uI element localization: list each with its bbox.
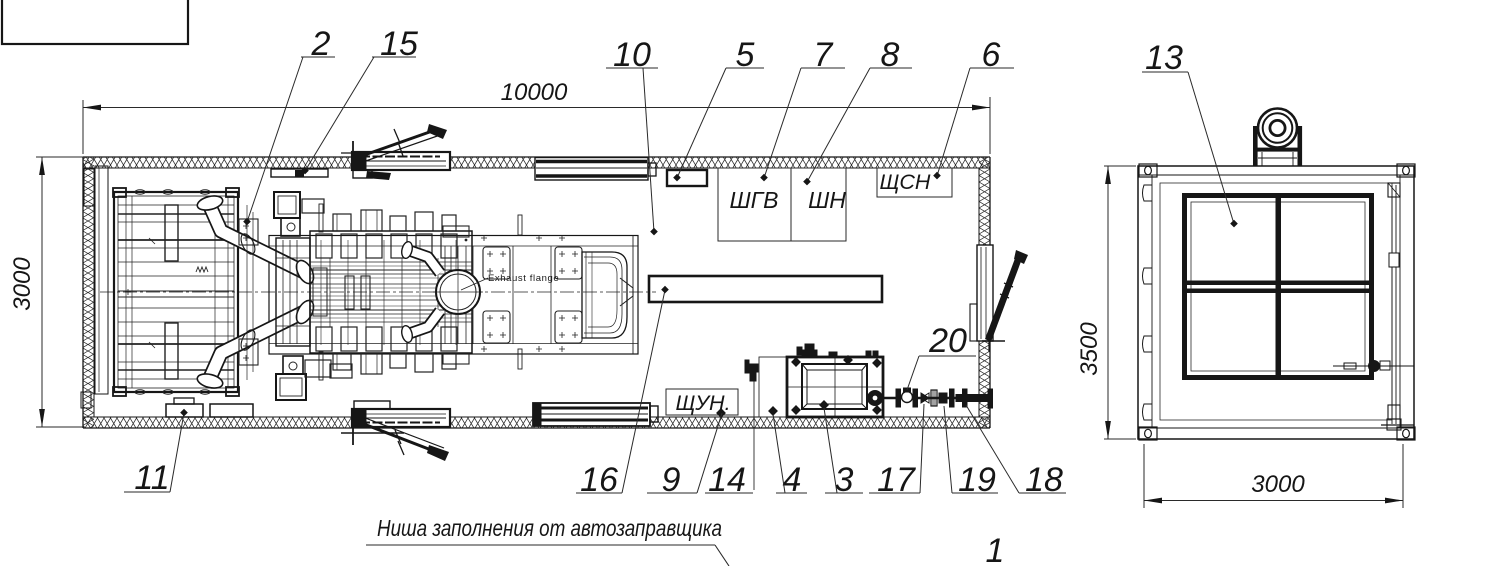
svg-text:20: 20 <box>928 322 967 360</box>
svg-text:3000: 3000 <box>9 257 36 311</box>
svg-text:ЩСН: ЩСН <box>880 170 931 194</box>
svg-text:Ниша заполнения от автозаправщ: Ниша заполнения от автозаправщика <box>377 515 722 541</box>
svg-text:3500: 3500 <box>1076 322 1103 376</box>
svg-text:1: 1 <box>986 532 1005 566</box>
svg-text:10000: 10000 <box>501 79 568 106</box>
svg-text:3000: 3000 <box>1251 471 1305 498</box>
svg-text:11: 11 <box>134 459 169 497</box>
svg-text:13: 13 <box>1145 39 1183 77</box>
svg-text:ШН: ШН <box>808 187 846 213</box>
svg-text:ШГВ: ШГВ <box>729 187 778 213</box>
